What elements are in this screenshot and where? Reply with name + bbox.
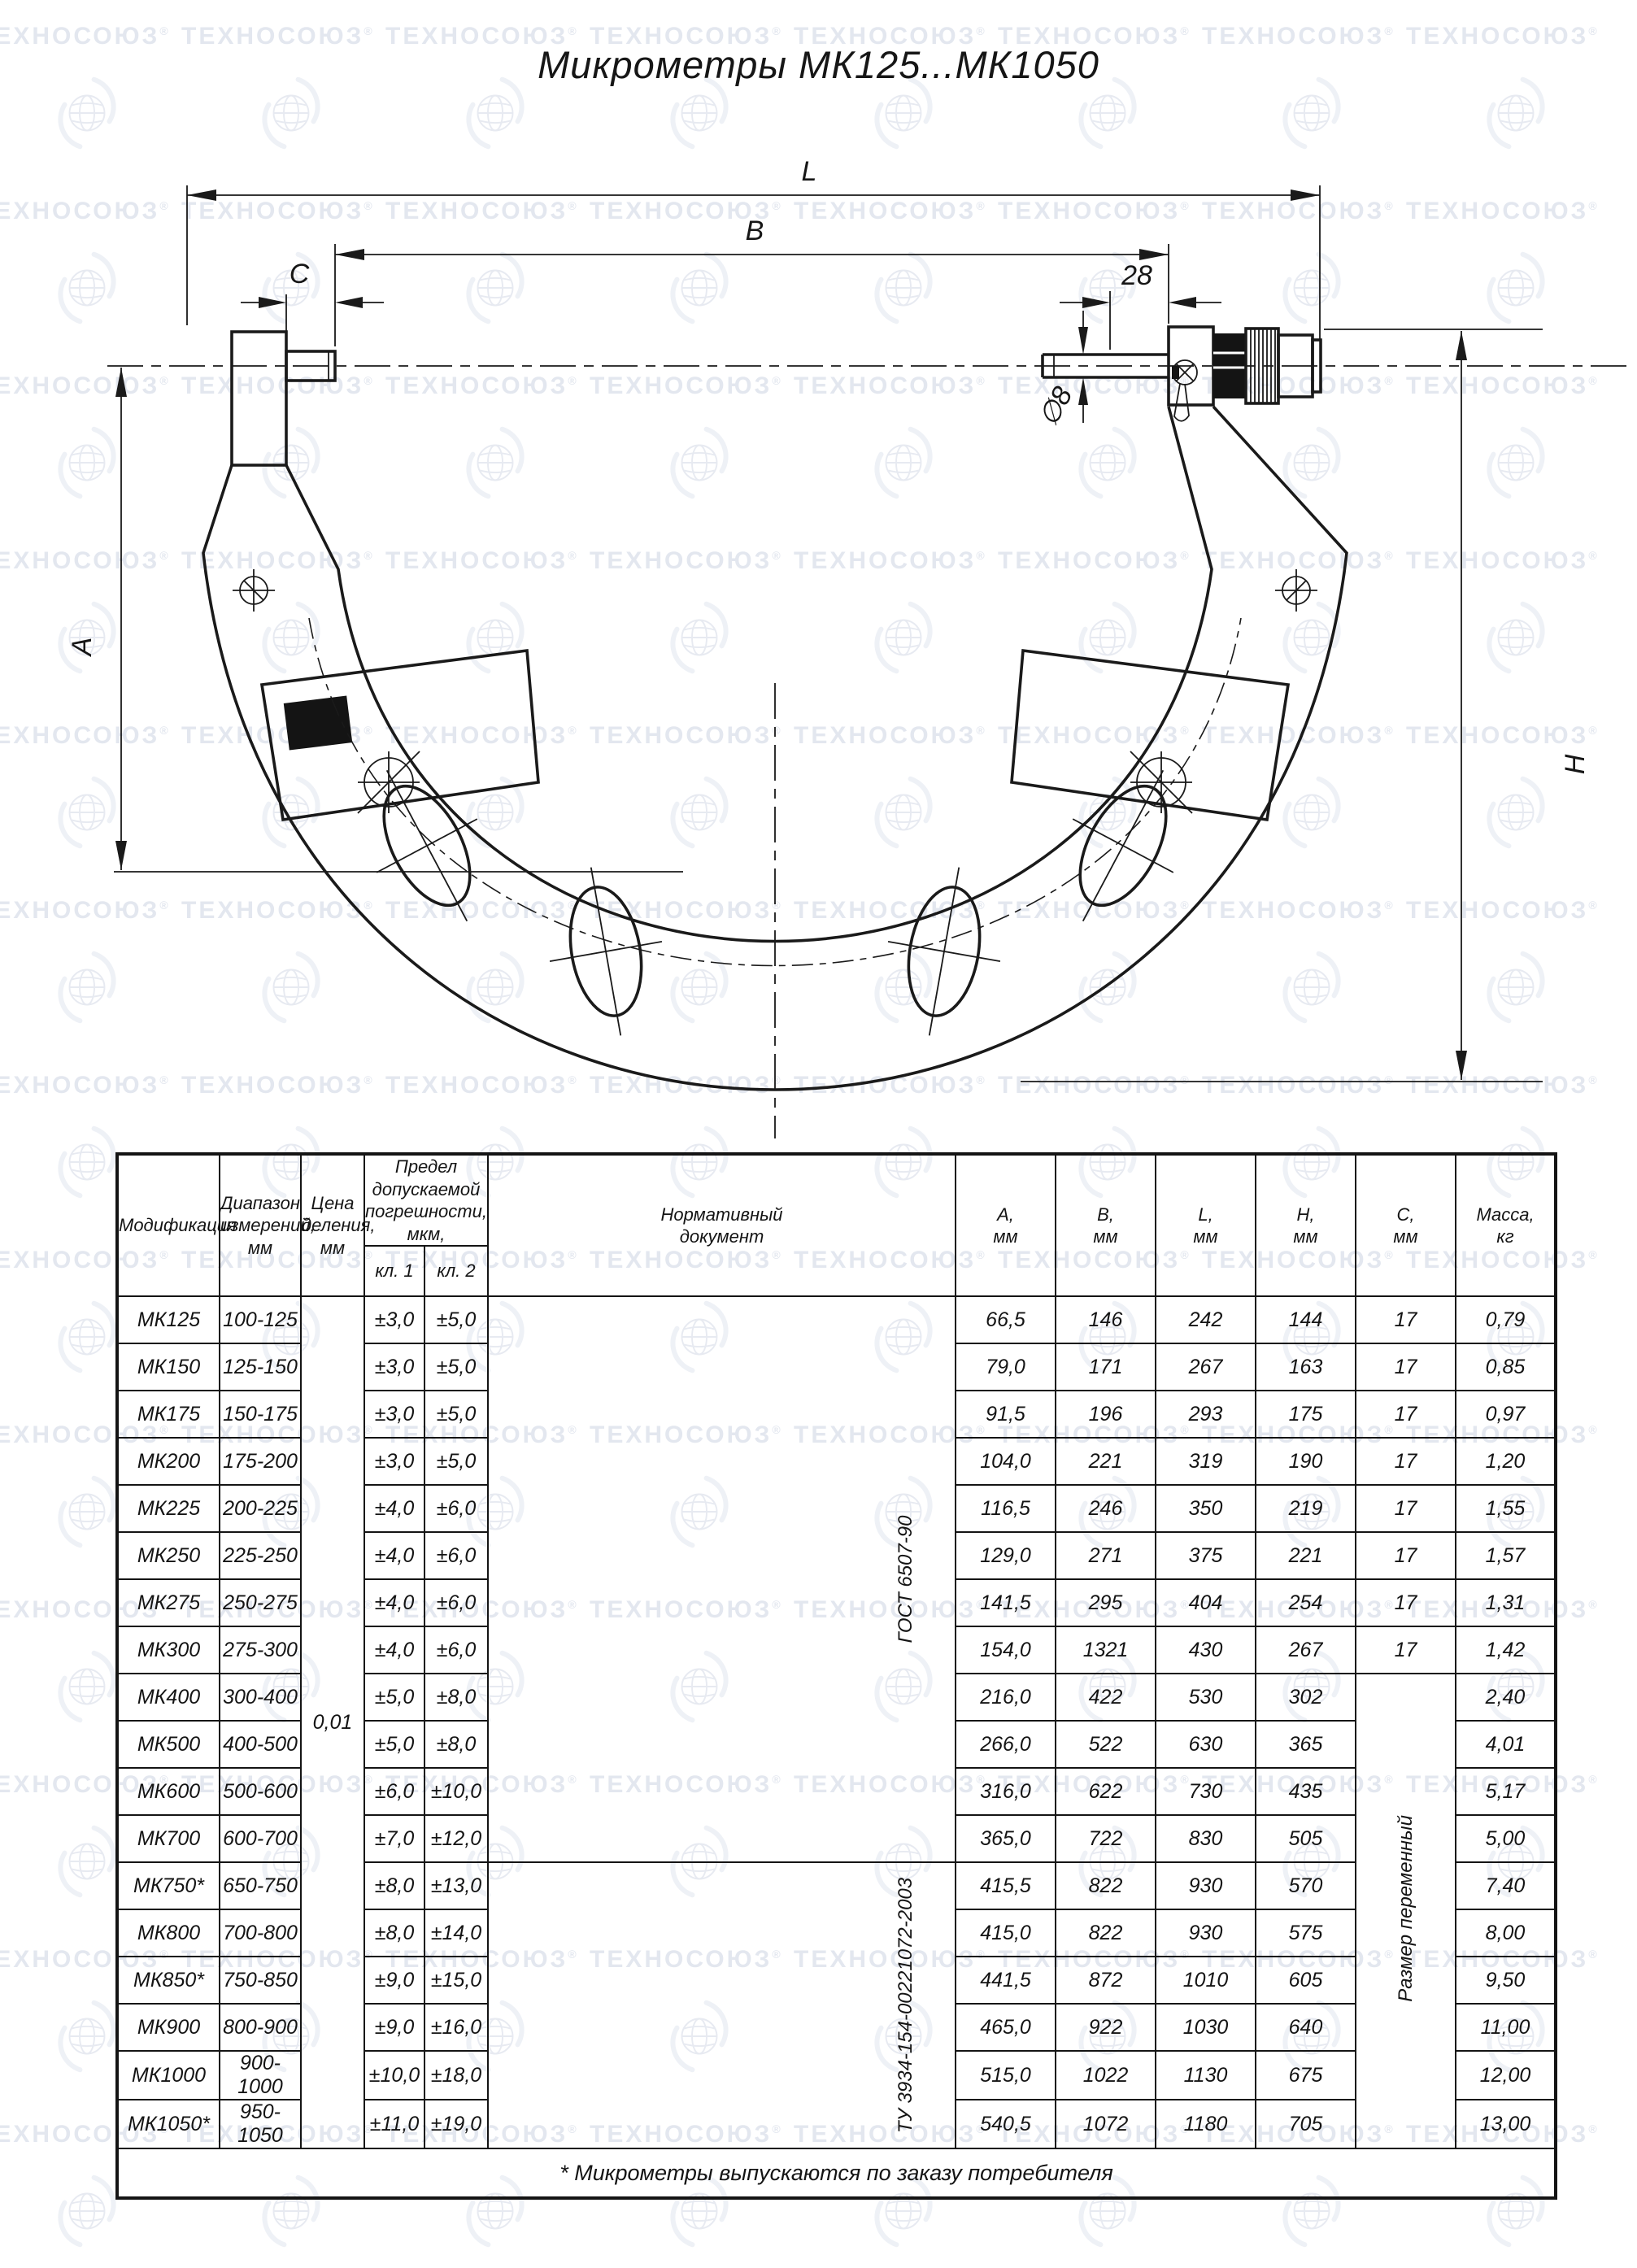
spec-cell: 246	[1056, 1485, 1156, 1532]
spec-cell: 650-750	[220, 1862, 301, 1909]
spec-cell: ±6,0	[364, 1768, 424, 1815]
spec-cell: 2,40	[1456, 1674, 1556, 1721]
vernier-scale	[1213, 333, 1246, 398]
col-header-norm-doc: Нормативный документ	[488, 1154, 956, 1296]
spec-cell: МК225	[117, 1485, 220, 1532]
table-row: МК125100-1250,01±3,0±5,0ГОСТ 6507-9066,5…	[117, 1296, 1556, 1343]
col-header-error-limit: Предел допускаемой погрешности, мкм,	[364, 1154, 488, 1246]
spec-cell: ±3,0	[364, 1343, 424, 1391]
spec-cell: 200-225	[220, 1485, 301, 1532]
col-header-A: А, мм	[956, 1154, 1056, 1296]
document-page: ТЕХНОСОЮЗ®ТЕХНОСОЮЗ®ТЕХНОСОЮЗ®ТЕХНОСОЮЗ®…	[0, 0, 1637, 2268]
spec-cell: 116,5	[956, 1485, 1056, 1532]
spec-cell: 7,40	[1456, 1862, 1556, 1909]
spec-cell: 79,0	[956, 1343, 1056, 1391]
spec-cell: ±10,0	[424, 1768, 488, 1815]
spec-cell: 830	[1156, 1815, 1256, 1862]
spec-cell: 100-125	[220, 1296, 301, 1343]
spec-cell: ±4,0	[364, 1532, 424, 1579]
spec-cell: 129,0	[956, 1532, 1056, 1579]
spec-cell: 295	[1056, 1579, 1156, 1626]
spec-cell: 600-700	[220, 1815, 301, 1862]
spec-cell: 822	[1056, 1909, 1156, 1957]
spec-cell: 404	[1156, 1579, 1256, 1626]
spec-cell: 196	[1056, 1391, 1156, 1438]
spec-cell: 17	[1356, 1626, 1456, 1674]
watermark-globe-icon	[52, 2173, 122, 2249]
spec-cell: ±14,0	[424, 1909, 488, 1957]
spec-cell: МК250	[117, 1532, 220, 1579]
spec-cell: ±3,0	[364, 1391, 424, 1438]
micrometer-technical-drawing: L B C 28	[0, 0, 1637, 1147]
spec-cell: 1180	[1156, 2100, 1256, 2148]
col-header-mass: Масса, кг	[1456, 1154, 1556, 1296]
spec-cell: 430	[1156, 1626, 1256, 1674]
spec-cell: 175-200	[220, 1438, 301, 1485]
spec-cell: 302	[1256, 1674, 1356, 1721]
dimension-C: C	[241, 259, 384, 348]
spec-cell: 705	[1256, 2100, 1356, 2148]
spec-cell: 11,00	[1456, 2004, 1556, 2051]
spec-cell: ±3,0	[364, 1296, 424, 1343]
spec-cell: ±5,0	[424, 1343, 488, 1391]
rotated-text: ГОСТ 6507-90	[895, 1516, 917, 1643]
spec-cell: ±4,0	[364, 1485, 424, 1532]
spec-cell: 1010	[1156, 1957, 1256, 2004]
dim-label-H: H	[1560, 754, 1591, 774]
spec-cell: 1,42	[1456, 1626, 1556, 1674]
spec-cell: ±15,0	[424, 1957, 488, 2004]
spec-cell: 171	[1056, 1343, 1156, 1391]
spec-cell: 415,0	[956, 1909, 1056, 1957]
spec-cell: 675	[1256, 2051, 1356, 2100]
spec-cell: 365,0	[956, 1815, 1056, 1862]
page-title: Микрометры МК125...МК1050	[0, 42, 1637, 87]
spec-cell: 221	[1056, 1438, 1156, 1485]
col-header-class2: кл. 2	[424, 1246, 488, 1296]
spec-cell: МК850*	[117, 1957, 220, 2004]
spec-cell: 17	[1356, 1296, 1456, 1343]
spec-cell: 91,5	[956, 1391, 1056, 1438]
spec-cell: 750-850	[220, 1957, 301, 2004]
spec-cell: 219	[1256, 1485, 1356, 1532]
spec-cell: МК125	[117, 1296, 220, 1343]
norm-doc-tu-cell: ТУ 3934-154-00221072-2003	[488, 1862, 956, 2148]
spec-cell: МК300	[117, 1626, 220, 1674]
spec-cell: 5,00	[1456, 1815, 1556, 1862]
spec-cell: 104,0	[956, 1438, 1056, 1485]
spec-cell: 700-800	[220, 1909, 301, 1957]
spec-cell: 175	[1256, 1391, 1356, 1438]
col-header-class1: кл. 1	[364, 1246, 424, 1296]
col-header-modification: Модификация	[117, 1154, 220, 1296]
col-header-H: Н, мм	[1256, 1154, 1356, 1296]
spec-cell: МК1050*	[117, 2100, 220, 2148]
spec-cell: ±8,0	[364, 1862, 424, 1909]
spec-cell: 1,20	[1456, 1438, 1556, 1485]
spec-cell: ±5,0	[424, 1296, 488, 1343]
watermark-globe-icon	[52, 1474, 122, 1550]
spec-cell: 570	[1256, 1862, 1356, 1909]
spec-cell: МК700	[117, 1815, 220, 1862]
spec-cell: 17	[1356, 1579, 1456, 1626]
spec-cell: ±8,0	[424, 1674, 488, 1721]
watermark-globe-icon	[52, 1823, 122, 1900]
spec-cell: МК500	[117, 1721, 220, 1768]
spec-cell: 930	[1156, 1862, 1256, 1909]
spec-cell: 275-300	[220, 1626, 301, 1674]
spec-cell: МК800	[117, 1909, 220, 1957]
norm-doc-gost-cell: ГОСТ 6507-90	[488, 1296, 956, 1862]
spec-cell: 17	[1356, 1438, 1456, 1485]
spec-cell: ±7,0	[364, 1815, 424, 1862]
spec-cell: ±8,0	[364, 1909, 424, 1957]
dim-label-dia8: ∅8	[1033, 381, 1078, 431]
spec-cell: 225-250	[220, 1532, 301, 1579]
spec-cell: МК600	[117, 1768, 220, 1815]
spec-cell: 630	[1156, 1721, 1256, 1768]
spec-cell: 250-275	[220, 1579, 301, 1626]
dim-label-C: C	[290, 259, 310, 289]
spec-cell: 17	[1356, 1532, 1456, 1579]
c-variable-size-cell: Размер переменный	[1356, 1674, 1456, 2148]
spec-cell: 319	[1156, 1438, 1256, 1485]
spec-cell: 530	[1156, 1674, 1256, 1721]
spec-cell: ±16,0	[424, 2004, 488, 2051]
spec-cell: 163	[1256, 1343, 1356, 1391]
division-value-cell: 0,01	[301, 1296, 364, 2148]
spec-cell: 0,97	[1456, 1391, 1556, 1438]
spec-cell: 350	[1156, 1485, 1256, 1532]
col-header-L: L, мм	[1156, 1154, 1256, 1296]
frame-screw-left	[233, 569, 275, 612]
spec-cell: ±9,0	[364, 2004, 424, 2051]
spec-cell: 422	[1056, 1674, 1156, 1721]
spec-cell: ±8,0	[424, 1721, 488, 1768]
spec-cell: 0,79	[1456, 1296, 1556, 1343]
spec-cell: 522	[1056, 1721, 1156, 1768]
spec-cell: ±11,0	[364, 2100, 424, 2148]
spec-cell: 0,85	[1456, 1343, 1556, 1391]
spec-cell: ±13,0	[424, 1862, 488, 1909]
spec-cell: ±5,0	[364, 1721, 424, 1768]
spec-cell: 1030	[1156, 2004, 1256, 2051]
spec-cell: 1130	[1156, 2051, 1256, 2100]
spec-cell: 800-900	[220, 2004, 301, 2051]
spec-cell: 540,5	[956, 2100, 1056, 2148]
spec-cell: 267	[1156, 1343, 1256, 1391]
spec-cell: ±19,0	[424, 2100, 488, 2148]
spec-cell: 435	[1256, 1768, 1356, 1815]
spec-cell: 900-1000	[220, 2051, 301, 2100]
spec-cell: 1,31	[1456, 1579, 1556, 1626]
spec-cell: ±5,0	[364, 1674, 424, 1721]
spec-cell: 8,00	[1456, 1909, 1556, 1957]
spec-cell: МК175	[117, 1391, 220, 1438]
spec-cell: 13,00	[1456, 2100, 1556, 2148]
spec-cell: 930	[1156, 1909, 1256, 1957]
specification-table: Модификация Диапазон измерений, мм Цена …	[115, 1152, 1557, 2200]
dimension-H: H	[1021, 329, 1591, 1082]
spec-cell: 17	[1356, 1391, 1456, 1438]
spec-cell: 441,5	[956, 1957, 1056, 2004]
spec-cell: 4,01	[1456, 1721, 1556, 1768]
spec-cell: 9,50	[1456, 1957, 1556, 2004]
spec-cell: 872	[1056, 1957, 1156, 2004]
spec-cell: 605	[1256, 1957, 1356, 2004]
spec-cell: 640	[1256, 2004, 1356, 2051]
dim-label-L: L	[802, 156, 817, 187]
spec-cell: 17	[1356, 1343, 1456, 1391]
spec-cell: 242	[1156, 1296, 1256, 1343]
spec-cell: 730	[1156, 1768, 1256, 1815]
spec-cell: 465,0	[956, 2004, 1056, 2051]
spec-cell: 1321	[1056, 1626, 1156, 1674]
spec-cell: 150-175	[220, 1391, 301, 1438]
spec-cell: МК275	[117, 1579, 220, 1626]
rotated-text: ТУ 3934-154-00221072-2003	[895, 1878, 917, 2133]
spec-cell: ±5,0	[424, 1438, 488, 1485]
col-header-range: Диапазон измерений, мм	[220, 1154, 301, 1296]
anvil	[232, 332, 335, 465]
frame-screw-right	[1275, 569, 1317, 612]
spec-cell: МК1000	[117, 2051, 220, 2100]
dim-label-28: 28	[1121, 260, 1152, 291]
spec-cell: 221	[1256, 1532, 1356, 1579]
dimension-B: B	[335, 215, 1169, 346]
spec-cell: 1072	[1056, 2100, 1156, 2148]
spec-cell: ±4,0	[364, 1579, 424, 1626]
spec-cell: 375	[1156, 1532, 1256, 1579]
spec-cell: 12,00	[1456, 2051, 1556, 2100]
spec-cell: ±6,0	[424, 1532, 488, 1579]
spec-cell: ±9,0	[364, 1957, 424, 2004]
spec-cell: ±4,0	[364, 1626, 424, 1674]
spec-cell: ±6,0	[424, 1579, 488, 1626]
spec-cell: 267	[1256, 1626, 1356, 1674]
col-header-division: Цена деления, мм	[301, 1154, 364, 1296]
spec-cell: ±6,0	[424, 1485, 488, 1532]
spec-cell: 300-400	[220, 1674, 301, 1721]
col-header-B: В, мм	[1056, 1154, 1156, 1296]
spec-cell: 66,5	[956, 1296, 1056, 1343]
spec-cell: 415,5	[956, 1862, 1056, 1909]
spec-cell: 316,0	[956, 1768, 1056, 1815]
spec-cell: 365	[1256, 1721, 1356, 1768]
spec-cell: ±5,0	[424, 1391, 488, 1438]
spec-cell: 922	[1056, 2004, 1156, 2051]
watermark-globe-icon	[52, 1648, 122, 1725]
dim-label-A: A	[67, 638, 98, 658]
spec-cell: 216,0	[956, 1674, 1056, 1721]
rotated-text: Размер переменный	[1395, 1815, 1417, 2002]
spec-cell: МК200	[117, 1438, 220, 1485]
spec-cell: МК400	[117, 1674, 220, 1721]
spec-cell: 146	[1056, 1296, 1156, 1343]
spec-cell: 822	[1056, 1862, 1156, 1909]
spec-cell: 293	[1156, 1391, 1256, 1438]
watermark-globe-icon	[52, 1998, 122, 2074]
spec-cell: 141,5	[956, 1579, 1056, 1626]
spec-cell: 271	[1056, 1532, 1156, 1579]
spec-cell: 266,0	[956, 1721, 1056, 1768]
spec-cell: 575	[1256, 1909, 1356, 1957]
col-header-C: С, мм	[1356, 1154, 1456, 1296]
spec-cell: 400-500	[220, 1721, 301, 1768]
spec-cell: 1022	[1056, 2051, 1156, 2100]
spec-cell: 1,55	[1456, 1485, 1556, 1532]
spec-cell: 500-600	[220, 1768, 301, 1815]
spec-cell: ±6,0	[424, 1626, 488, 1674]
spec-cell: 190	[1256, 1438, 1356, 1485]
spec-cell: 1,57	[1456, 1532, 1556, 1579]
spec-cell: 17	[1356, 1485, 1456, 1532]
spec-cell: ±18,0	[424, 2051, 488, 2100]
table-footnote: * Микрометры выпускаются по заказу потре…	[117, 2148, 1556, 2198]
spec-cell: МК900	[117, 2004, 220, 2051]
spec-cell: 505	[1256, 1815, 1356, 1862]
spec-cell: 125-150	[220, 1343, 301, 1391]
spec-cell: ±3,0	[364, 1438, 424, 1485]
spec-cell: 5,17	[1456, 1768, 1556, 1815]
spec-cell: 254	[1256, 1579, 1356, 1626]
spec-cell: 144	[1256, 1296, 1356, 1343]
dim-label-B: B	[746, 215, 764, 246]
spec-cell: 515,0	[956, 2051, 1056, 2100]
spec-cell: ±10,0	[364, 2051, 424, 2100]
spec-cell: ±12,0	[424, 1815, 488, 1862]
dimension-L: L	[187, 156, 1320, 340]
spec-cell: МК750*	[117, 1862, 220, 1909]
spec-cell: 622	[1056, 1768, 1156, 1815]
spec-cell: 950-1050	[220, 2100, 301, 2148]
watermark-globe-icon	[52, 1299, 122, 1375]
spec-cell: 154,0	[956, 1626, 1056, 1674]
spec-table-body: МК125100-1250,01±3,0±5,0ГОСТ 6507-9066,5…	[117, 1296, 1556, 2148]
spec-cell: 722	[1056, 1815, 1156, 1862]
spec-cell: МК150	[117, 1343, 220, 1391]
